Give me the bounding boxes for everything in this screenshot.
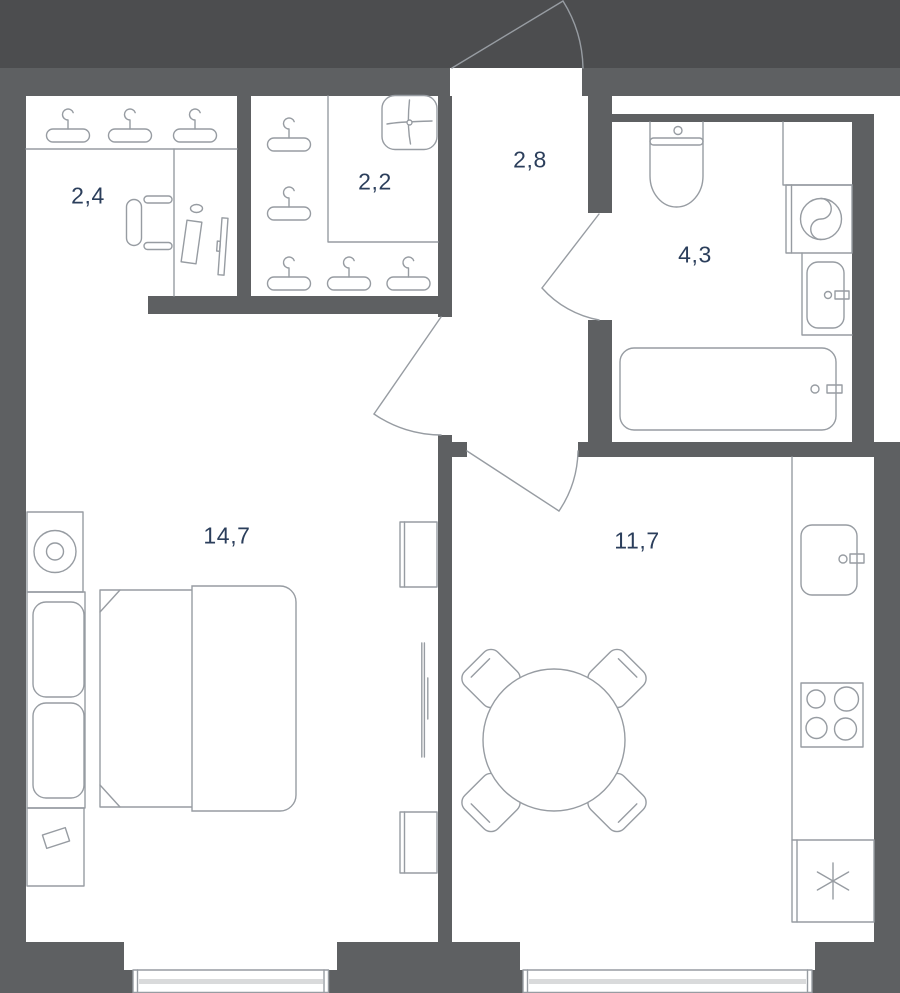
- floor-plan-canvas: 2,4 2,2 2,8 4,3 14,7 11,7: [0, 0, 900, 993]
- room-label-bedroom: 14,7: [203, 523, 250, 550]
- kitchen-door-opening: [467, 442, 578, 457]
- floor-plan-drawing: [0, 0, 900, 993]
- room-label-closet: 2,2: [358, 169, 392, 196]
- room-floor-walk-in-closet: [26, 96, 237, 296]
- room-floors: [26, 68, 900, 942]
- passage-floor: [26, 296, 148, 314]
- dining-table-icon: [483, 669, 625, 811]
- bedroom-door-opening: [438, 317, 452, 435]
- room-floor-bathroom: [612, 122, 852, 442]
- blanket-icon: [192, 586, 296, 811]
- room-label-kitchen-living: 11,7: [614, 528, 659, 555]
- shaft-gap-strip: [612, 96, 900, 114]
- right-edge-strip: [874, 114, 900, 442]
- entrance-door-opening: [450, 68, 582, 96]
- room-label-bathroom: 4,3: [678, 242, 712, 269]
- entrance-door-swing: [452, 1, 583, 68]
- room-label-hallway: 2,8: [513, 147, 547, 174]
- bedroom-window: [124, 942, 337, 993]
- kitchen-window: [520, 942, 815, 993]
- room-label-walk-in-closet: 2,4: [71, 183, 105, 210]
- bathroom-door-opening: [588, 213, 612, 320]
